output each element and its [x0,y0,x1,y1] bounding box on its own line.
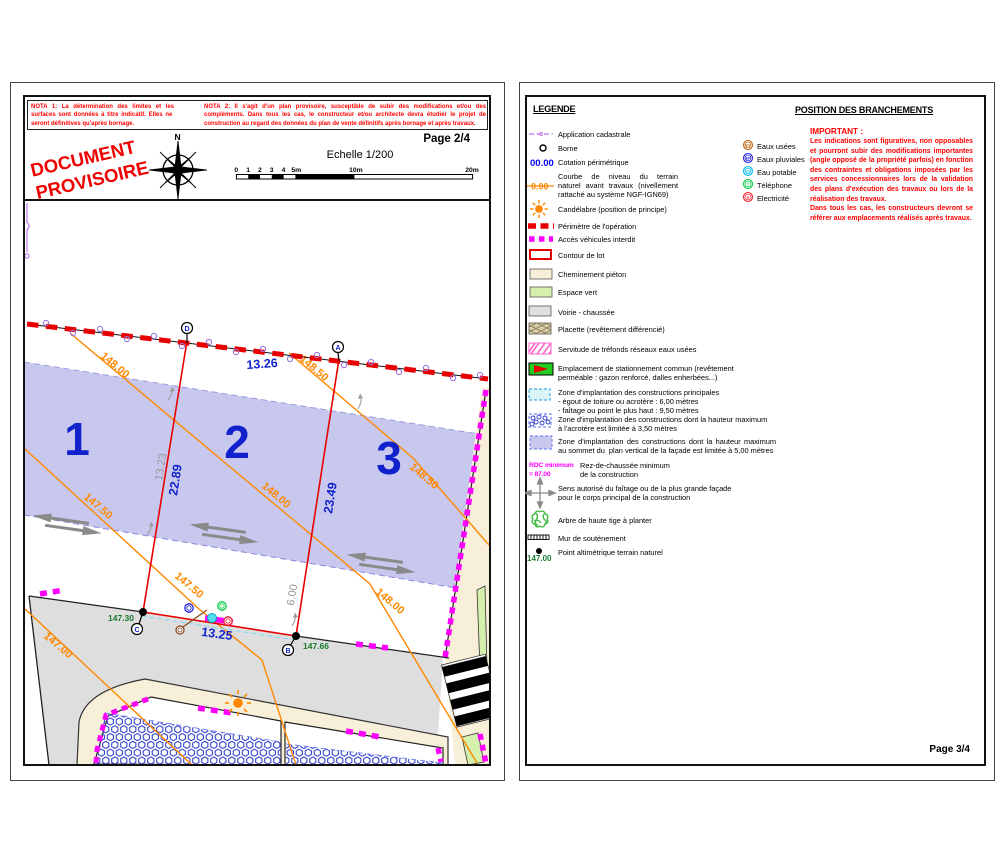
svg-text:0.00: 0.00 [531,182,549,192]
svg-text:147.50: 147.50 [172,570,205,601]
svg-text:4: 4 [282,167,286,174]
svg-text:147.66: 147.66 [303,641,329,651]
svg-text:2: 2 [258,167,262,174]
svg-text:D: D [184,326,189,333]
svg-text:A: A [335,345,340,352]
svg-text:20m: 20m [465,167,479,174]
svg-text:0: 0 [234,167,238,174]
svg-text:B: B [285,648,290,655]
svg-text:2: 2 [224,416,250,468]
svg-text:C: C [134,627,139,634]
svg-text:00.00: 00.00 [530,158,554,169]
svg-text:1: 1 [246,167,250,174]
svg-text:N: N [175,132,181,142]
svg-text:6.00: 6.00 [285,583,300,606]
svg-text:3: 3 [376,432,402,484]
svg-text:5m: 5m [291,167,301,174]
svg-text:3: 3 [270,167,274,174]
svg-text:1: 1 [64,413,90,465]
svg-text:EU: EU [746,144,751,148]
svg-text:148.00: 148.00 [373,586,406,617]
svg-text:AEP: AEP [745,170,751,174]
svg-text:EP: EP [746,157,751,161]
svg-text:147.00: 147.00 [527,554,552,563]
svg-text:13.26: 13.26 [246,356,278,372]
svg-text:147.30: 147.30 [108,613,134,623]
svg-text:10m: 10m [349,167,363,174]
